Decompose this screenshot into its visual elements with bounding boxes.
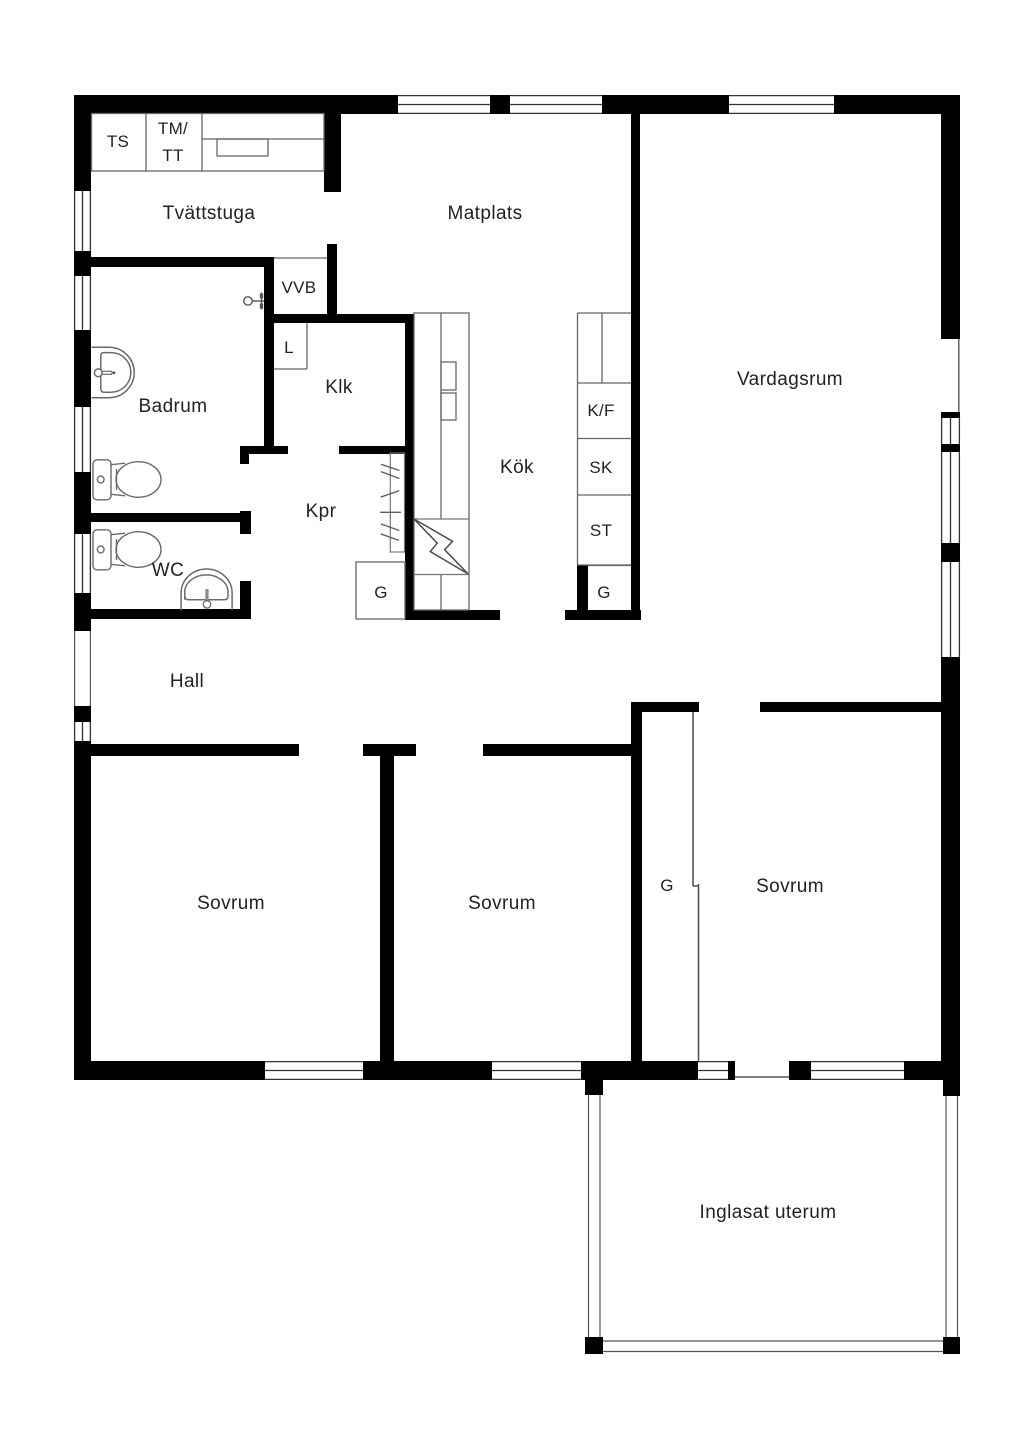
svg-text:Kpr: Kpr bbox=[306, 501, 337, 522]
svg-text:Klk: Klk bbox=[325, 377, 353, 398]
svg-text:Vardagsrum: Vardagsrum bbox=[737, 369, 843, 390]
svg-text:Sovrum: Sovrum bbox=[468, 893, 536, 914]
svg-text:Kök: Kök bbox=[500, 457, 534, 478]
svg-text:G: G bbox=[660, 876, 674, 895]
svg-text:Hall: Hall bbox=[170, 671, 204, 692]
svg-text:ST: ST bbox=[590, 521, 612, 540]
svg-text:Sovrum: Sovrum bbox=[756, 876, 824, 897]
svg-text:G: G bbox=[597, 583, 611, 602]
svg-text:L: L bbox=[284, 338, 294, 357]
svg-text:TS: TS bbox=[107, 132, 129, 151]
svg-text:Tvättstuga: Tvättstuga bbox=[163, 203, 256, 224]
svg-text:Sovrum: Sovrum bbox=[197, 893, 265, 914]
svg-text:SK: SK bbox=[589, 458, 613, 477]
svg-text:Matplats: Matplats bbox=[447, 203, 522, 224]
svg-text:WC: WC bbox=[152, 560, 184, 581]
svg-text:VVB: VVB bbox=[282, 278, 317, 297]
svg-text:K/F: K/F bbox=[587, 401, 614, 420]
svg-text:Badrum: Badrum bbox=[139, 396, 208, 417]
svg-text:TT: TT bbox=[162, 146, 183, 165]
svg-text:G: G bbox=[374, 583, 388, 602]
svg-text:Inglasat uterum: Inglasat uterum bbox=[700, 1202, 837, 1223]
svg-text:TM/: TM/ bbox=[158, 119, 188, 138]
